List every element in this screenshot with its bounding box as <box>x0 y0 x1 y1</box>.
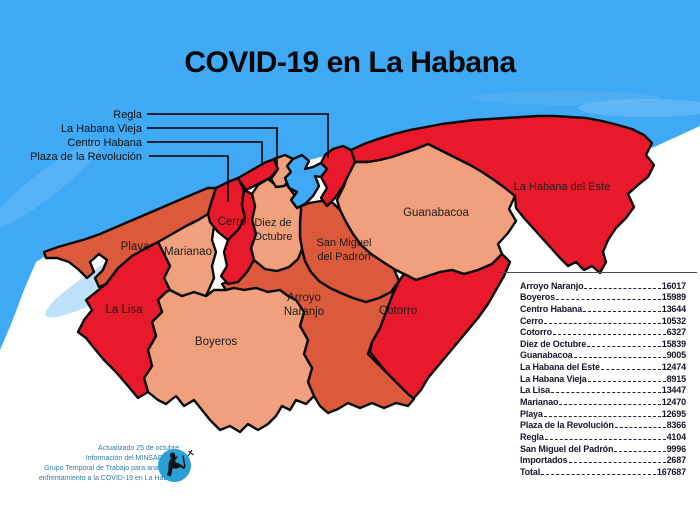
leader-dashes <box>553 334 666 335</box>
leader-dashes <box>583 311 661 312</box>
table-row-value: 9996 <box>667 445 686 454</box>
table-row-name: La Lisa <box>520 386 550 395</box>
leader-dashes <box>574 357 666 358</box>
leader-dashes <box>556 299 661 300</box>
leader-dashes <box>614 451 665 452</box>
sea-wave-streak <box>470 91 660 105</box>
table-row-name: Cerro <box>520 317 543 326</box>
table-row-value: 16017 <box>662 282 686 291</box>
table-row-name: Marianao <box>520 398 558 407</box>
table-row-value: 12470 <box>662 398 686 407</box>
table-row-name: Arroyo Naranjo <box>520 282 583 291</box>
table-row: Cotorro6327 <box>520 326 686 338</box>
region-label-diez-de-octubre: Octubre <box>253 231 292 243</box>
table-row: Plaza de la Revolución8366 <box>520 419 686 431</box>
table-row-name: Guanabacoa <box>520 351 573 360</box>
logo-cross <box>188 450 194 456</box>
leader-dashes <box>559 404 660 405</box>
table-row-name: Cotorro <box>520 328 552 337</box>
leader-dashes <box>584 288 660 289</box>
leader-dashes <box>588 381 666 382</box>
table-row: La Habana Vieja8915 <box>520 372 686 384</box>
region-label-playa: Playa <box>121 241 150 253</box>
table-row: Diez de Octubre15839 <box>520 337 686 349</box>
table-row-value: 10532 <box>662 317 686 326</box>
table-row-name: Boyeros <box>520 293 555 302</box>
table-row: Importados2687 <box>520 454 686 466</box>
region-label-arroyo-naranjo: Arroyo <box>287 292 321 304</box>
table-row: Total167687 <box>520 465 686 477</box>
table-row: Centro Habana13644 <box>520 302 686 314</box>
table-row-value: 9005 <box>667 351 686 360</box>
callout-label-regla: Regla <box>113 109 143 121</box>
table-row-value: 8915 <box>667 375 686 384</box>
table-row-name: Importados <box>520 456 568 465</box>
table-row-value: 13447 <box>662 386 686 395</box>
table-row-value: 8366 <box>667 421 686 430</box>
region-label-habana-del-este: La Habana del Este <box>514 181 611 193</box>
leader-dashes <box>569 462 666 463</box>
table-row: Guanabacoa9005 <box>520 349 686 361</box>
table-row: La Habana del Este12474 <box>520 360 686 372</box>
table-row-name: Total <box>520 468 540 477</box>
table-row: Arroyo Naranjo16017 <box>520 279 686 291</box>
table-row-name: Centro Habana <box>520 305 582 314</box>
table-row: Boyeros15989 <box>520 291 686 303</box>
leader-dashes <box>541 474 656 475</box>
region-label-san-miguel: del Padrón <box>317 251 370 263</box>
region-label-diez-de-octubre: Diez de <box>254 217 291 229</box>
region-label-san-miguel: San Miguel <box>316 237 371 249</box>
table-row-name: San Miguel del Padrón <box>520 445 613 454</box>
region-label-cerro: Cerro <box>218 216 247 228</box>
table-row-value: 13644 <box>662 305 686 314</box>
table-row-value: 2687 <box>667 456 686 465</box>
table-top-rule <box>499 272 697 273</box>
region-label-la-lisa: La Lisa <box>105 304 143 316</box>
table-row: Regla4104 <box>520 430 686 442</box>
table-row: Cerro10532 <box>520 314 686 326</box>
table-row: Marianao12470 <box>520 395 686 407</box>
table-row: San Miguel del Padrón9996 <box>520 442 686 454</box>
region-label-cotorro: Cotorro <box>379 305 417 317</box>
leader-dashes <box>601 369 661 370</box>
table-row-name: Diez de Octubre <box>520 340 586 349</box>
table-row: La Lisa13447 <box>520 384 686 396</box>
region-label-marianao: Marianao <box>164 246 212 258</box>
callout-label-habana-vieja: La Habana Vieja <box>61 123 143 135</box>
callout-label-centro-habana: Centro Habana <box>67 137 142 149</box>
table-row-name: Regla <box>520 433 544 442</box>
table-row-value: 4104 <box>667 433 686 442</box>
leader-dashes <box>551 392 661 393</box>
table-row: Playa12695 <box>520 407 686 419</box>
table-row-value: 12474 <box>662 363 686 372</box>
leader-dashes <box>544 416 661 417</box>
leader-dashes <box>545 439 666 440</box>
table-row-name: La Habana Vieja <box>520 375 587 384</box>
covid-havana-infographic: Regla La Habana Vieja Centro Habana Plaz… <box>0 0 700 513</box>
callout-label-plaza: Plaza de la Revolución <box>30 151 142 163</box>
table-row-value: 167687 <box>657 468 686 477</box>
leader-dashes <box>544 323 660 324</box>
region-label-boyeros: Boyeros <box>195 336 237 348</box>
table-row-value: 12695 <box>662 410 686 419</box>
cases-table: Arroyo Naranjo16017 Boyeros15989 Centro … <box>520 279 686 477</box>
region-label-guanabacoa: Guanabacoa <box>403 207 469 219</box>
giraldilla-logo-icon <box>156 446 196 486</box>
table-row-name: Playa <box>520 410 543 419</box>
table-row-value: 15989 <box>662 293 686 302</box>
table-row-value: 15839 <box>662 340 686 349</box>
region-label-arroyo-naranjo: Naranjo <box>284 306 324 318</box>
page-title: COVID-19 en La Habana <box>0 47 700 78</box>
leader-dashes <box>615 427 666 428</box>
table-row-value: 6327 <box>667 328 686 337</box>
leader-dashes <box>587 346 660 347</box>
table-row-name: Plaza de la Revolución <box>520 421 614 430</box>
table-row-name: La Habana del Este <box>520 363 600 372</box>
